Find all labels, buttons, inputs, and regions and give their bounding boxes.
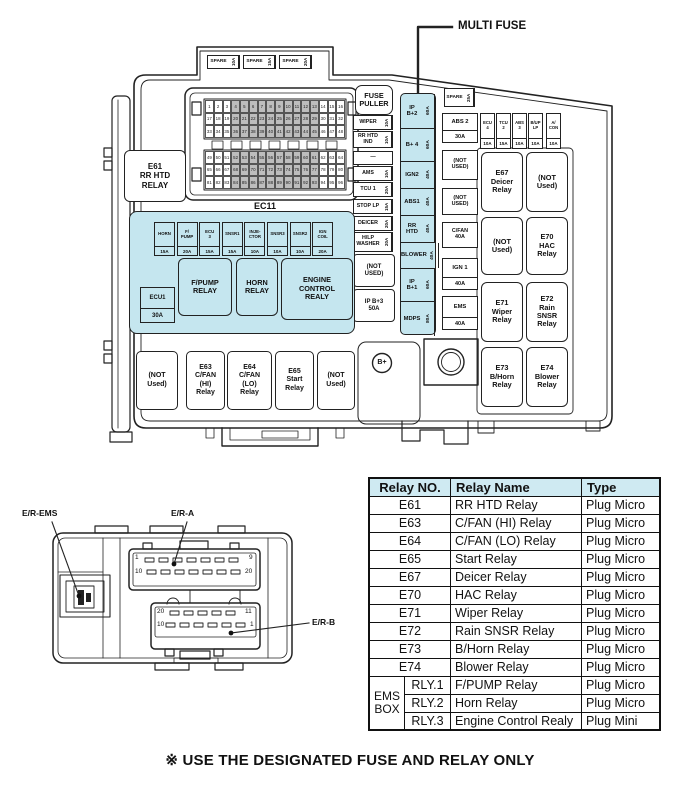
ec11-pin-24: 24: [266, 113, 275, 126]
ec11-pin-69: 69: [240, 164, 249, 177]
multifuse-b+-4: B+ 460A: [401, 129, 435, 162]
fuse-mid-c-fan-40a-label: C/FAN 40A: [443, 223, 477, 247]
cell: Plug Micro: [582, 640, 660, 658]
cell: RLY.2: [405, 694, 451, 712]
cell: C/FAN (HI) Relay: [451, 514, 582, 532]
ems-fuse-f-pump: F/ PUMP20A: [177, 222, 198, 256]
ec11-pin-55: 55: [258, 151, 267, 164]
er-a-label: E/R-A: [171, 508, 194, 518]
ec11-pin-28: 28: [301, 113, 310, 126]
fuse-sm-ecu-4-label: ECU 4: [481, 114, 494, 138]
multifuse-ign2-amp: 40A: [423, 162, 435, 188]
multifuse-blower-amp: 40A: [427, 243, 439, 268]
erb-pin-20: 20: [157, 608, 164, 615]
table-row-e72: E72Rain SNSR RelayPlug Micro: [369, 622, 660, 640]
fuse-sm-a-con: A/ CON10A: [546, 113, 561, 149]
fuse-spare-10a-label: SPARE: [208, 56, 229, 68]
fuse-spare-15a-amp: 15A: [265, 56, 275, 68]
cell: C/FAN (LO) Relay: [451, 532, 582, 550]
fuse-sm-a-con-amp: 10A: [547, 138, 560, 148]
cell: E67: [369, 568, 451, 586]
fuse-sm-abs-3: ABS 310A: [512, 113, 527, 149]
bottom-relay-e65-3: E65 Start Relay: [275, 351, 314, 410]
fuse-deicer: DEICER20A: [353, 216, 393, 231]
fuse-ip-b3: IP B+3 50A: [353, 289, 395, 322]
fuse-spare-10a: SPARE10A: [207, 55, 240, 69]
multifuse-abs1-amp: 40A: [423, 189, 435, 215]
cell: Plug Micro: [582, 550, 660, 568]
ec11-pin-47: 47: [328, 125, 337, 138]
fuse-ams: AMS10A: [353, 166, 393, 181]
bottom-relay-not-4: (NOT Used): [317, 351, 355, 410]
ec11-pin-46: 46: [319, 125, 328, 138]
ec11-pin-50: 50: [214, 151, 223, 164]
ec11-pin-57: 57: [275, 151, 284, 164]
multifuse-ign2-label: IGN2: [401, 162, 423, 188]
fuse-mid-abs-2: ABS 230A: [442, 113, 478, 143]
ec11-pin-80: 80: [336, 164, 345, 177]
fuse-puller: FUSE PULLER: [355, 85, 393, 115]
ec11-pin-37: 37: [240, 125, 249, 138]
fuse-spare-15a: SPARE15A: [243, 55, 276, 69]
fuse-sm-abs-3-label: ABS 3: [513, 114, 526, 138]
relay-e61: E61 RR HTD RELAY: [124, 150, 186, 202]
table-row-e63: E63C/FAN (HI) RelayPlug Micro: [369, 514, 660, 532]
ems-relay-horn: HORN RELAY: [236, 258, 278, 316]
ec11-pin-9: 9: [275, 100, 284, 113]
fuse-mid-not-used-label: (NOT USED): [443, 189, 477, 214]
ec11-pin-35: 35: [223, 125, 232, 138]
cell: E74: [369, 658, 451, 676]
ec11-pin-78: 78: [319, 164, 328, 177]
ec11-pin-13: 13: [310, 100, 319, 113]
fuse-sm-ecu-4-amp: 10A: [481, 138, 494, 148]
ec11-pin-20: 20: [231, 113, 240, 126]
cell: Plug Micro: [582, 496, 660, 514]
ems-fuse-f-pump-amp: 20A: [178, 246, 197, 255]
ec11-pin-12: 12: [301, 100, 310, 113]
multifuse-mdps-amp: 80A: [423, 302, 435, 336]
ec11-pin-60: 60: [301, 151, 310, 164]
ec11-pin-59: 59: [293, 151, 302, 164]
ec11-pin-42: 42: [284, 125, 293, 138]
multifuse-ip-b+1-amp: 60A: [423, 269, 435, 301]
ec11-pin-22: 22: [249, 113, 258, 126]
table-row-rly-3: RLY.3Engine Control RealyPlug Mini: [369, 712, 660, 730]
ec11-pin-95: 95: [328, 176, 337, 189]
ec11-pin-68: 68: [231, 164, 240, 177]
ec11-pin-15: 15: [328, 100, 337, 113]
era-pin-9: 9: [249, 554, 253, 561]
table-row-e71: E71Wiper RelayPlug Micro: [369, 604, 660, 622]
ec11-pin-21: 21: [240, 113, 249, 126]
fuse-wiper-amp: 10A: [382, 116, 392, 129]
cell: Plug Micro: [582, 676, 660, 694]
ec11-pin-65: 65: [205, 164, 214, 177]
fuse-relay-manual-page: MULTI FUSE E61 RR HTD RELAY EC11 FUSE PU…: [0, 0, 700, 790]
b-plus-terminal: B+: [372, 359, 392, 366]
cell: E73: [369, 640, 451, 658]
relay-not: (NOT Used): [481, 217, 523, 275]
header-type: Type: [582, 478, 660, 496]
ec11-pin-7: 7: [258, 100, 267, 113]
ec11-pin-48: 48: [336, 125, 345, 138]
cell: Plug Micro: [582, 568, 660, 586]
fuse-mid-not-used: (NOT USED): [442, 150, 478, 180]
ems-relay-f-pump: F/PUMP RELAY: [178, 258, 232, 316]
fuse-rr-htd-ind-amp: 10A: [382, 132, 392, 147]
cell: E70: [369, 586, 451, 604]
fuse-mid-not-used-label: (NOT USED): [443, 151, 477, 179]
fuse-wiper-label: WIPER: [354, 116, 382, 129]
bottom-relay-e64-2: E64 C/FAN (LO) Relay: [227, 351, 272, 410]
fuse-tcu-1-label: TCU 1: [354, 183, 382, 196]
ec11-pin-3: 3: [223, 100, 232, 113]
ec11-pin-grid-lower: 4950515253545556575859606162636465666768…: [205, 151, 345, 189]
cell: E71: [369, 604, 451, 622]
era-pin-10: 10: [135, 568, 142, 575]
ec11-pin-76: 76: [301, 164, 310, 177]
cell: RLY.1: [405, 676, 451, 694]
table-header-row: Relay NO.Relay NameType: [369, 478, 660, 496]
ems-box-group-cell: EMS BOX: [369, 676, 405, 730]
fuse-spare-15a-label: SPARE: [244, 56, 265, 68]
cell: Plug Mini: [582, 712, 660, 730]
fuse-sm-b-up-lp-amp: 10A: [529, 138, 542, 148]
era-pin-1: 1: [135, 554, 139, 561]
ec11-pin-10: 10: [284, 100, 293, 113]
relay-e74: E74 Blower Relay: [526, 347, 568, 407]
fuse-mid-ign-1-label: IGN 1: [443, 259, 477, 277]
ec11-pin-85: 85: [240, 176, 249, 189]
ec11-pin-73: 73: [275, 164, 284, 177]
bottom-relay-e63-1: E63 C/FAN (HI) Relay: [186, 351, 225, 410]
multifuse-rr-htd-amp: 40A: [423, 216, 435, 242]
ec11-pin-91: 91: [293, 176, 302, 189]
fuse-sm-tcu-2-amp: 15A: [497, 138, 510, 148]
fuse-rr-htd-ind-label: RR HTD IND: [354, 132, 382, 147]
fuse-not-used-left: (NOT USED): [353, 254, 395, 287]
multifuse-mdps-label: MDPS: [401, 302, 423, 336]
fuse--label: —: [354, 152, 392, 164]
era-pin-20: 20: [245, 568, 252, 575]
ec11-pin-41: 41: [275, 125, 284, 138]
ec11-pin-40: 40: [266, 125, 275, 138]
fuse-tcu-1: TCU 120A: [353, 182, 393, 197]
ec11-pin-93: 93: [310, 176, 319, 189]
ec11-pin-87: 87: [258, 176, 267, 189]
ec11-pin-61: 61: [310, 151, 319, 164]
ec11-pin-14: 14: [319, 100, 328, 113]
ems-box: HORN15AF/ PUMP20AECU 315ASNSR115AINJE- C…: [129, 211, 355, 334]
ec11-pin-62: 62: [319, 151, 328, 164]
ec11-pin-18: 18: [214, 113, 223, 126]
fuse-mid-ign-1-amp: 40A: [443, 277, 477, 289]
multifuse-blower: BLOWER40A: [401, 243, 435, 269]
fuse-ams-amp: 10A: [382, 167, 392, 180]
fuse-mid-c-fan-40a: C/FAN 40A: [442, 222, 478, 248]
fuse-h-lp-washer-amp: 20A: [382, 233, 392, 251]
cell: HAC Relay: [451, 586, 582, 604]
multifuse-b+-4-label: B+ 4: [401, 129, 423, 161]
multi-fuse-label: MULTI FUSE: [458, 20, 526, 32]
ec11-pin-84: 84: [231, 176, 240, 189]
ec11-pin-44: 44: [301, 125, 310, 138]
ec11-pin-19: 19: [223, 113, 232, 126]
ec11-pin-11: 11: [293, 100, 302, 113]
ems-fuse-ecu-3-amp: 15A: [200, 246, 219, 255]
ec11-pin-23: 23: [258, 113, 267, 126]
cell: Rain SNSR Relay: [451, 622, 582, 640]
ec11-pin-81: 81: [205, 176, 214, 189]
fuse-stop-lp-label: STOP LP: [354, 200, 382, 213]
ec11-pin-90: 90: [284, 176, 293, 189]
ec11-pin-49: 49: [205, 151, 214, 164]
ec11-pin-72: 72: [266, 164, 275, 177]
fuse-spare-10a-amp: 10A: [229, 56, 239, 68]
cell: Engine Control Realy: [451, 712, 582, 730]
ec11-pin-94: 94: [319, 176, 328, 189]
cell: Plug Micro: [582, 694, 660, 712]
table-row-e74: E74Blower RelayPlug Micro: [369, 658, 660, 676]
ec11-pin-2: 2: [214, 100, 223, 113]
ec11-pin-8: 8: [266, 100, 275, 113]
cell: Horn Relay: [451, 694, 582, 712]
ec11-pin-1: 1: [205, 100, 214, 113]
ec11-pin-29: 29: [310, 113, 319, 126]
ems-fuse-ecu1: ECU130A: [140, 287, 175, 323]
fuse-stop-lp-amp: 15A: [382, 200, 392, 213]
multi-fuse-strip: IP B+260AB+ 460AIGN240AABS140ARR HTD40AB…: [400, 93, 436, 335]
multifuse-ip-b+2-label: IP B+2: [401, 94, 423, 128]
ems-fuse-ign-coil-label: IGN COIL: [313, 223, 332, 246]
fuse-sm-tcu-2-label: TCU 2: [497, 114, 510, 138]
multifuse-rr-htd-label: RR HTD: [401, 216, 423, 242]
table-row-e73: E73B/Horn RelayPlug Micro: [369, 640, 660, 658]
cell: RR HTD Relay: [451, 496, 582, 514]
cell: Plug Micro: [582, 604, 660, 622]
ec11-pin-83: 83: [223, 176, 232, 189]
multi-fuse-arrow: [418, 27, 452, 94]
table-row-rly-1: EMS BOXRLY.1F/PUMP RelayPlug Micro: [369, 676, 660, 694]
multifuse-b+-4-amp: 60A: [423, 129, 435, 161]
relay-e72: E72 Rain SNSR Relay: [526, 282, 568, 342]
ec11-pin-32: 32: [336, 113, 345, 126]
ems-fuse-ecu-3-label: ECU 3: [200, 223, 219, 246]
ec11-pin-51: 51: [223, 151, 232, 164]
fuse-: —: [353, 151, 393, 165]
ec11-pin-54: 54: [249, 151, 258, 164]
header-relay-name: Relay Name: [451, 478, 582, 496]
ec11-pin-31: 31: [328, 113, 337, 126]
ec11-pin-74: 74: [284, 164, 293, 177]
multifuse-ign2: IGN240A: [401, 162, 435, 189]
fuse-mid-abs-2-amp: 30A: [443, 130, 477, 142]
multifuse-blower-label: BLOWER: [401, 243, 427, 268]
ec11-pin-79: 79: [328, 164, 337, 177]
ec11-pin-86: 86: [249, 176, 258, 189]
ems-fuse-snsr2-label: SNSR2: [291, 223, 310, 246]
fuse-spare-20a: SPARE20A: [279, 55, 312, 69]
ec11-pin-64: 64: [336, 151, 345, 164]
ec11-pin-4: 4: [231, 100, 240, 113]
ec11-pin-43: 43: [293, 125, 302, 138]
ec11-pin-30: 30: [319, 113, 328, 126]
table-row-e70: E70HAC RelayPlug Micro: [369, 586, 660, 604]
erb-pin-1: 1: [250, 621, 254, 628]
ems-fuse-snsr1: SNSR115A: [222, 222, 243, 256]
multifuse-mdps: MDPS80A: [401, 302, 435, 336]
ec11-pin-77: 77: [310, 164, 319, 177]
ems-fuse-ecu1-label: ECU1: [141, 288, 174, 308]
fuse-stop-lp: STOP LP15A: [353, 199, 393, 214]
er-b-label: E/R-B: [312, 617, 335, 627]
cell: Wiper Relay: [451, 604, 582, 622]
ec11-pin-6: 6: [249, 100, 258, 113]
ems-relay-engine: ENGINE CONTROL REALY: [281, 258, 353, 320]
ec11-pin-96: 96: [336, 176, 345, 189]
fuse-h-lp-washer: H/LP WASHER20A: [353, 232, 393, 252]
fuse-ams-label: AMS: [354, 167, 382, 180]
ec11-pin-grid-upper: 1234567891011121314151617181920212223242…: [205, 100, 345, 138]
ec11-pin-45: 45: [310, 125, 319, 138]
cell: Start Relay: [451, 550, 582, 568]
ems-fuse-horn-label: HORN: [155, 223, 174, 246]
ems-fuse-inje-ctor-amp: 10A: [245, 246, 264, 255]
cell: E72: [369, 622, 451, 640]
ec11-pin-25: 25: [275, 113, 284, 126]
fuse-mid-ign-1: IGN 140A: [442, 258, 478, 290]
fuse-spare-20a-label: SPARE: [280, 56, 301, 68]
multifuse-ip-b+1: IP B+160A: [401, 269, 435, 302]
fuse-rr-htd-ind: RR HTD IND10A: [353, 131, 393, 148]
ec11-pin-53: 53: [240, 151, 249, 164]
ems-fuse-horn: HORN15A: [154, 222, 175, 256]
fuse-mid-ems: EMS40A: [442, 296, 478, 330]
ec11-pin-58: 58: [284, 151, 293, 164]
cell: E65: [369, 550, 451, 568]
fuse-h-lp-washer-label: H/LP WASHER: [354, 233, 382, 251]
cell: Deicer Relay: [451, 568, 582, 586]
cell: Blower Relay: [451, 658, 582, 676]
ems-fuse-snsr1-amp: 15A: [223, 246, 242, 255]
ec11-pin-33: 33: [205, 125, 214, 138]
fuse-sm-b-up-lp: B/UP LP10A: [528, 113, 543, 149]
er-ems-label: E/R-EMS: [22, 508, 57, 518]
table-row-e67: E67Deicer RelayPlug Micro: [369, 568, 660, 586]
ems-fuse-inje-ctor-label: INJE- CTOR: [245, 223, 264, 246]
ec11-pin-66: 66: [214, 164, 223, 177]
ec11-pin-38: 38: [249, 125, 258, 138]
ems-fuse-snsr3-label: SNSR3: [268, 223, 287, 246]
relay-e71: E71 Wiper Relay: [481, 282, 523, 342]
cell: E63: [369, 514, 451, 532]
ec11-pin-36: 36: [231, 125, 240, 138]
table-row-e65: E65Start RelayPlug Micro: [369, 550, 660, 568]
table-row-e61: E61RR HTD RelayPlug Micro: [369, 496, 660, 514]
cell: E64: [369, 532, 451, 550]
fuse-mid-ems-amp: 40A: [443, 317, 477, 329]
ec11-pin-75: 75: [293, 164, 302, 177]
multifuse-ip-b+2-amp: 60A: [423, 94, 435, 128]
cell: E61: [369, 496, 451, 514]
cell: Plug Micro: [582, 658, 660, 676]
multifuse-ip-b+1-label: IP B+1: [401, 269, 423, 301]
ems-fuse-snsr1-label: SNSR1: [223, 223, 242, 246]
ems-fuse-snsr3: SNSR310A: [267, 222, 288, 256]
fuse-mid-abs-2-label: ABS 2: [443, 114, 477, 130]
cell: F/PUMP Relay: [451, 676, 582, 694]
relay-e73: E73 B/Horn Relay: [481, 347, 523, 407]
ems-fuse-horn-amp: 15A: [155, 246, 174, 255]
ec11-pin-52: 52: [231, 151, 240, 164]
fuse-tcu-1-amp: 20A: [382, 183, 392, 196]
table-row-e64: E64C/FAN (LO) RelayPlug Micro: [369, 532, 660, 550]
ec11-pin-82: 82: [214, 176, 223, 189]
ec11-pin-56: 56: [266, 151, 275, 164]
ems-fuse-ign-coil: IGN COIL20A: [312, 222, 333, 256]
ems-fuse-inje-ctor: INJE- CTOR10A: [244, 222, 265, 256]
relay-e67: E67 Deicer Relay: [481, 152, 523, 212]
cell: Plug Micro: [582, 586, 660, 604]
multifuse-rr-htd: RR HTD40A: [401, 216, 435, 243]
fuse-spare-25a: SPARE 25A: [444, 88, 475, 107]
ems-fuse-ecu-3: ECU 315A: [199, 222, 220, 256]
designated-fuse-note: ※ USE THE DESIGNATED FUSE AND RELAY ONLY: [0, 751, 700, 769]
fuse-sm-a-con-label: A/ CON: [547, 114, 560, 138]
table-row-rly-2: RLY.2Horn RelayPlug Micro: [369, 694, 660, 712]
fuse-sm-ecu-4: ECU 410A: [480, 113, 495, 149]
ems-fuse-snsr3-amp: 10A: [268, 246, 287, 255]
cell: Plug Micro: [582, 532, 660, 550]
ems-fuse-ecu1-amp: 30A: [141, 308, 174, 322]
ec11-pin-92: 92: [301, 176, 310, 189]
ec11-pin-5: 5: [240, 100, 249, 113]
multifuse-ip-b+2: IP B+260A: [401, 94, 435, 129]
fuse-deicer-label: DEICER: [354, 217, 382, 230]
fuse-spare-20a-amp: 20A: [301, 56, 311, 68]
relay-not: (NOT Used): [526, 152, 568, 212]
ec11-pin-63: 63: [328, 151, 337, 164]
ec11-pin-27: 27: [293, 113, 302, 126]
ec11-pin-71: 71: [258, 164, 267, 177]
ec11-pin-67: 67: [223, 164, 232, 177]
ec11-pin-26: 26: [284, 113, 293, 126]
ec11-pin-17: 17: [205, 113, 214, 126]
ec11-pin-88: 88: [266, 176, 275, 189]
fuse-mid-not-used: (NOT USED): [442, 188, 478, 215]
cell: Plug Micro: [582, 514, 660, 532]
multifuse-abs1-label: ABS1: [401, 189, 423, 215]
fuse-sm-b-up-lp-label: B/UP LP: [529, 114, 542, 138]
ems-fuse-f-pump-label: F/ PUMP: [178, 223, 197, 246]
relay-table: Relay NO.Relay NameType E61RR HTD RelayP…: [368, 477, 661, 731]
ec11-label: EC11: [235, 201, 295, 211]
ec11-pin-89: 89: [275, 176, 284, 189]
multifuse-abs1: ABS140A: [401, 189, 435, 216]
ec11-pin-70: 70: [249, 164, 258, 177]
fuse-mid-ems-label: EMS: [443, 297, 477, 317]
ems-fuse-snsr2: SNSR210A: [290, 222, 311, 256]
cell: B/Horn Relay: [451, 640, 582, 658]
cell: Plug Micro: [582, 622, 660, 640]
ec11-pin-39: 39: [258, 125, 267, 138]
header-relay-no: Relay NO.: [369, 478, 451, 496]
erb-pin-11: 11: [245, 608, 252, 615]
ec11-pin-16: 16: [336, 100, 345, 113]
cell: RLY.3: [405, 712, 451, 730]
erb-pin-10: 10: [157, 621, 164, 628]
